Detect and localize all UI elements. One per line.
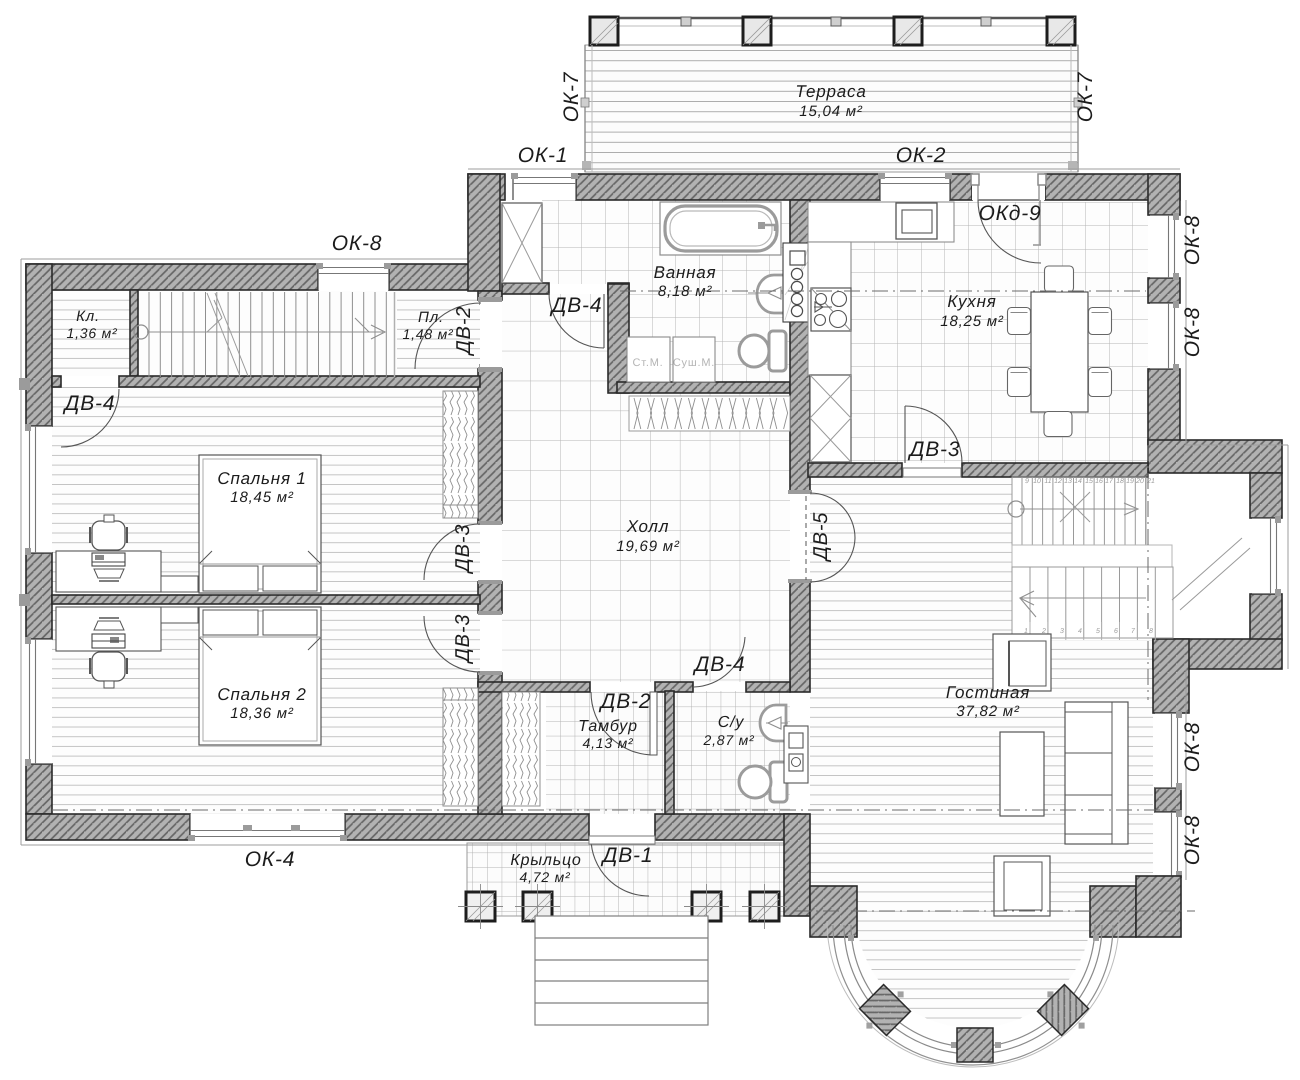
svg-text:Спальня 2: Спальня 2 <box>217 685 306 704</box>
svg-text:Пл.: Пл. <box>418 309 444 326</box>
svg-text:ОК-4: ОК-4 <box>245 848 296 871</box>
svg-text:ДВ-4: ДВ-4 <box>693 653 746 676</box>
svg-text:19: 19 <box>1126 478 1134 485</box>
svg-text:Кл.: Кл. <box>76 308 100 325</box>
svg-text:ОК-8: ОК-8 <box>1181 815 1204 866</box>
svg-text:13: 13 <box>1064 478 1072 485</box>
svg-text:18,25 м²: 18,25 м² <box>940 313 1004 330</box>
svg-text:21: 21 <box>1146 478 1155 485</box>
svg-text:ДВ-1: ДВ-1 <box>601 844 654 867</box>
svg-text:8,18 м²: 8,18 м² <box>658 283 712 300</box>
svg-text:ДВ-4: ДВ-4 <box>550 294 603 317</box>
svg-text:15: 15 <box>1085 478 1093 485</box>
svg-text:ОК-8: ОК-8 <box>1181 722 1204 773</box>
svg-text:ОК-1: ОК-1 <box>518 144 569 167</box>
svg-text:18: 18 <box>1116 478 1124 485</box>
svg-text:Тамбур: Тамбур <box>578 718 638 735</box>
svg-text:ОК-7: ОК-7 <box>560 71 583 122</box>
svg-text:16: 16 <box>1095 478 1103 485</box>
svg-text:ОК-2: ОК-2 <box>896 144 947 167</box>
svg-text:5: 5 <box>1096 628 1100 635</box>
svg-text:4: 4 <box>1078 628 1082 635</box>
svg-text:17: 17 <box>1105 478 1114 485</box>
svg-text:2,87 м²: 2,87 м² <box>703 732 756 748</box>
svg-text:Гостиная: Гостиная <box>946 683 1030 702</box>
svg-text:ДВ-4: ДВ-4 <box>63 392 116 415</box>
svg-text:6: 6 <box>1114 628 1118 635</box>
svg-text:37,82 м²: 37,82 м² <box>956 703 1020 720</box>
svg-text:Терраса: Терраса <box>795 82 866 101</box>
svg-text:ДВ-3: ДВ-3 <box>908 438 961 461</box>
svg-text:12: 12 <box>1054 478 1062 485</box>
svg-text:Ст.М.: Ст.М. <box>632 357 663 369</box>
svg-text:Суш.М.: Суш.М. <box>673 357 715 369</box>
svg-text:ДВ-2: ДВ-2 <box>599 690 652 713</box>
svg-text:19,69 м²: 19,69 м² <box>616 538 680 555</box>
svg-text:11: 11 <box>1044 478 1051 485</box>
svg-text:ОК-8: ОК-8 <box>1181 215 1204 266</box>
svg-text:ДВ-5: ДВ-5 <box>810 512 832 562</box>
svg-text:4,13 м²: 4,13 м² <box>583 735 635 751</box>
svg-text:Спальня 1: Спальня 1 <box>217 469 306 488</box>
svg-text:ОКд-9: ОКд-9 <box>979 202 1042 225</box>
svg-text:15,04 м²: 15,04 м² <box>799 103 863 120</box>
svg-text:4,72 м²: 4,72 м² <box>520 869 572 885</box>
svg-text:Холл: Холл <box>626 517 669 536</box>
svg-text:8: 8 <box>1149 628 1153 635</box>
svg-text:ОК-8: ОК-8 <box>332 232 383 255</box>
svg-text:9: 9 <box>1025 478 1029 485</box>
svg-text:20: 20 <box>1135 478 1144 485</box>
svg-text:14: 14 <box>1074 478 1082 485</box>
svg-text:Ванная: Ванная <box>654 263 717 282</box>
svg-text:3: 3 <box>1060 628 1064 635</box>
svg-text:10: 10 <box>1033 478 1041 485</box>
svg-text:ДВ-3: ДВ-3 <box>452 524 474 574</box>
svg-text:18,45 м²: 18,45 м² <box>230 489 294 506</box>
svg-text:С/у: С/у <box>718 714 745 731</box>
svg-text:1,36 м²: 1,36 м² <box>67 325 119 341</box>
svg-text:Кухня: Кухня <box>947 292 996 311</box>
svg-text:ДВ-3: ДВ-3 <box>452 614 474 664</box>
svg-text:18,36 м²: 18,36 м² <box>230 705 294 722</box>
svg-text:ОК-8: ОК-8 <box>1181 307 1204 358</box>
svg-text:1,48 м²: 1,48 м² <box>403 326 455 342</box>
svg-text:Крыльцо: Крыльцо <box>510 852 581 869</box>
svg-text:ОК-7: ОК-7 <box>1074 71 1097 122</box>
svg-text:ДВ-2: ДВ-2 <box>453 306 475 356</box>
